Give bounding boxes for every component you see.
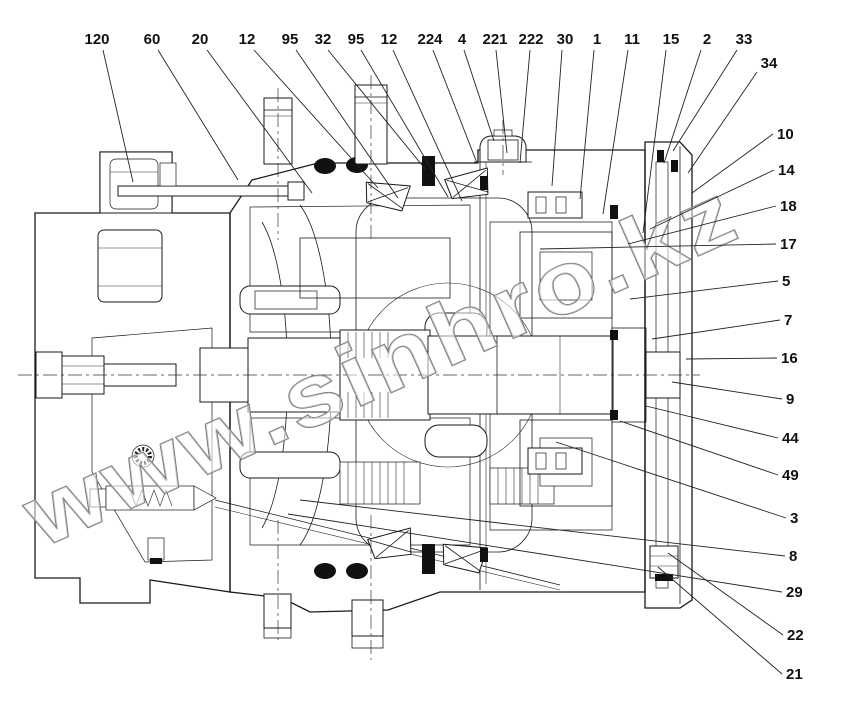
callout-label-5-23: 5 xyxy=(782,273,790,290)
callout-label-15-15: 15 xyxy=(663,31,680,48)
callout-label-95-6: 95 xyxy=(348,31,365,48)
leader-line-9-26 xyxy=(672,382,782,399)
callout-label-224-8: 224 xyxy=(417,31,443,48)
callout-label-30-12: 30 xyxy=(557,31,574,48)
leader-line-33-17 xyxy=(673,50,737,151)
callout-label-17-22: 17 xyxy=(780,236,797,253)
callout-label-44-27: 44 xyxy=(782,430,799,447)
callout-label-4-9: 4 xyxy=(458,31,467,48)
callout-label-22-32: 22 xyxy=(787,627,804,644)
callout-label-7-24: 7 xyxy=(784,312,792,329)
callout-label-95-4: 95 xyxy=(282,31,299,48)
callout-label-221-10: 221 xyxy=(482,31,507,48)
leader-line-49-28 xyxy=(620,421,778,475)
callout-label-12-3: 12 xyxy=(239,31,256,48)
callout-label-3-29: 3 xyxy=(790,510,798,527)
callout-label-120-0: 120 xyxy=(84,31,109,48)
leader-line-224-8 xyxy=(433,50,477,163)
leader-line-16-25 xyxy=(686,358,777,359)
callout-label-2-16: 2 xyxy=(703,31,711,48)
leader-line-30-12 xyxy=(552,50,562,186)
callout-label-8-30: 8 xyxy=(789,548,797,565)
callout-label-14-20: 14 xyxy=(778,162,795,179)
leader-line-1-13 xyxy=(580,50,594,199)
leader-line-10-19 xyxy=(692,134,773,193)
callout-label-49-28: 49 xyxy=(782,467,799,484)
callout-label-20-2: 20 xyxy=(192,31,209,48)
leader-line-4-9 xyxy=(464,50,494,141)
callout-label-222-11: 222 xyxy=(518,31,543,48)
callout-label-12-7: 12 xyxy=(381,31,398,48)
callout-label-9-26: 9 xyxy=(786,391,794,408)
callout-label-10-19: 10 xyxy=(777,126,794,143)
callout-label-60-1: 60 xyxy=(144,31,161,48)
callout-label-16-25: 16 xyxy=(781,350,798,367)
callout-label-29-31: 29 xyxy=(786,584,803,601)
callout-label-32-5: 32 xyxy=(315,31,332,48)
leader-line-11-14 xyxy=(603,50,628,214)
callout-label-21-33: 21 xyxy=(786,666,803,683)
leader-line-20-2 xyxy=(207,50,312,193)
leader-line-2-16 xyxy=(664,50,701,163)
callout-label-11-14: 11 xyxy=(624,31,640,48)
callout-label-34-18: 34 xyxy=(761,55,778,72)
leader-line-34-18 xyxy=(688,72,757,173)
callout-label-1-13: 1 xyxy=(593,31,601,48)
drawing-page: www.sinhro.kz 12060201295329512224422122… xyxy=(0,0,843,728)
callout-label-33-17: 33 xyxy=(736,31,753,48)
leader-line-22-32 xyxy=(668,553,783,635)
sectional-drawing: www.sinhro.kz 12060201295329512224422122… xyxy=(0,0,843,728)
callout-label-18-21: 18 xyxy=(780,198,797,215)
leader-line-7-24 xyxy=(652,320,780,339)
